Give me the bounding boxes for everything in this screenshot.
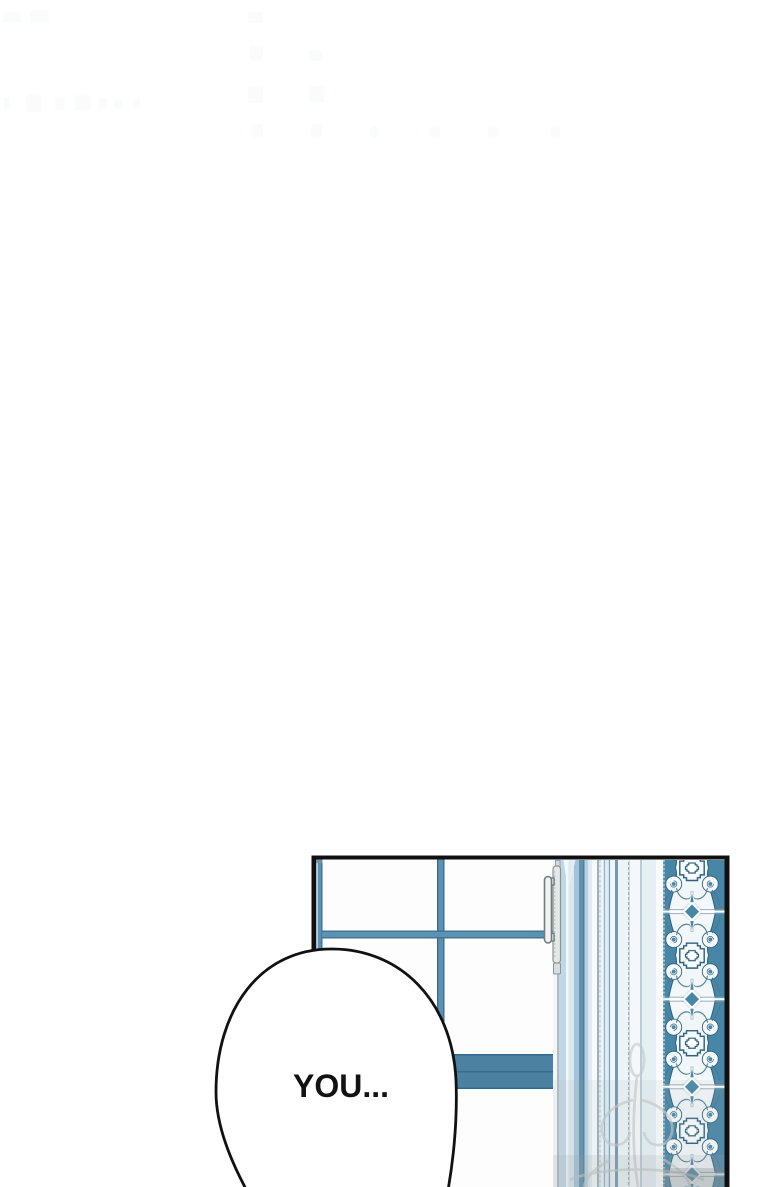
svg-text:YOU...: YOU...	[293, 1068, 389, 1104]
